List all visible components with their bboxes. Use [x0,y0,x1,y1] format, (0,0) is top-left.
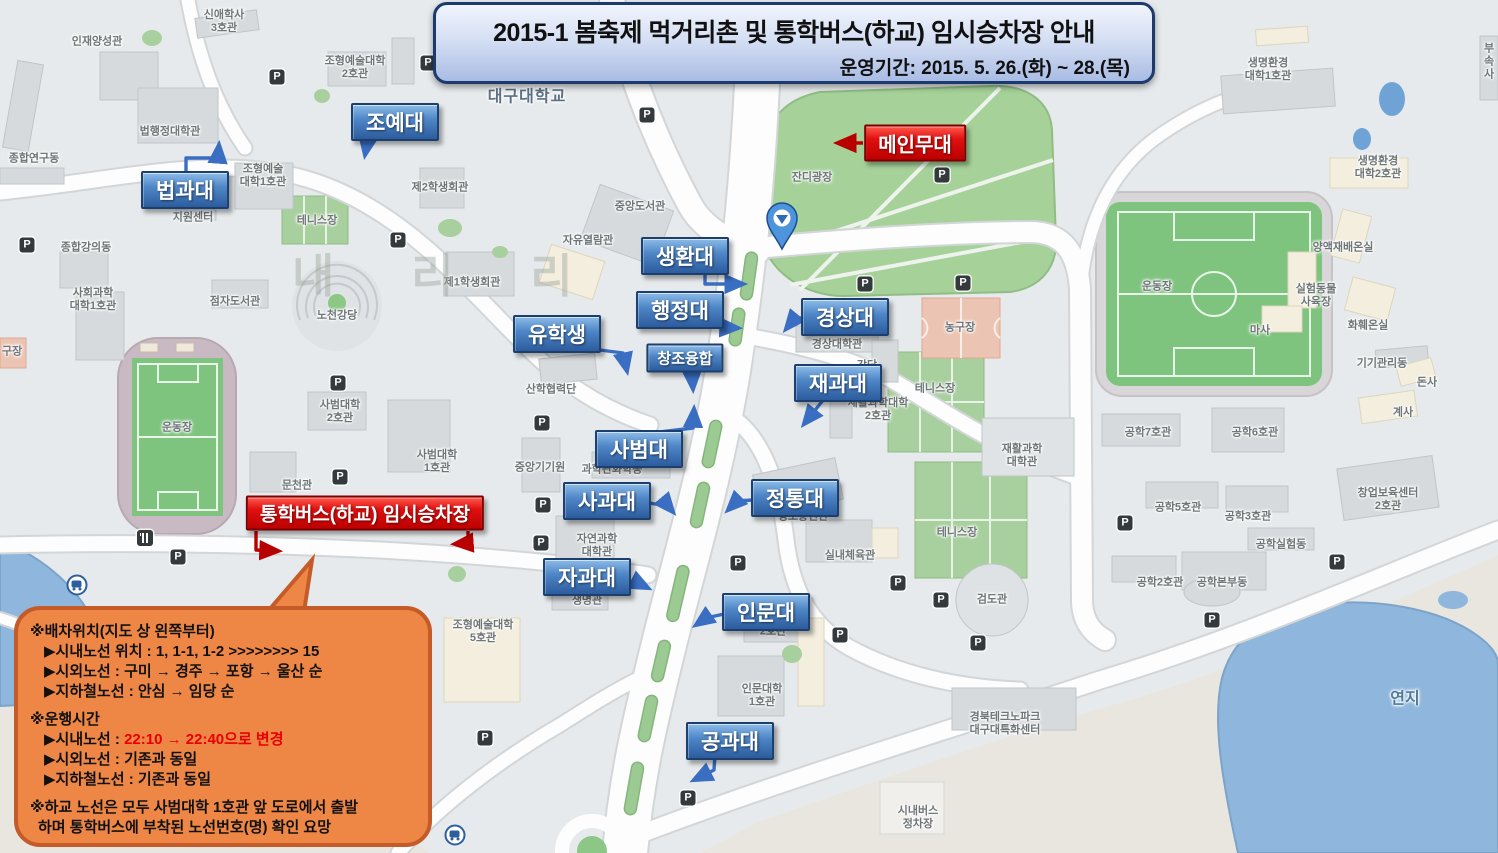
bus-stop-icon [67,575,88,596]
parking-icon: P [331,376,346,391]
parking-icon: P [956,276,971,291]
college-label: 사과대 [563,482,651,520]
notice-bubble: ※배차위치(지도 상 왼쪽부터)▶시내노선 위치 : 1, 1-1, 1-2 >… [14,606,432,847]
parking-icon: P [731,556,746,571]
notice-line: ▶시내노선 : 22:10 → 22:40으로 변경 [30,730,424,750]
parking-icon: P [891,576,906,591]
parking-icon: P [20,238,35,253]
notice-line: ※운행시간 [30,710,424,730]
college-label: 행정대 [636,291,724,329]
college-label: 생환대 [641,237,729,275]
notice-line: 하며 통학버스에 부착된 노선번호(명) 확인 요망 [30,818,424,838]
parking-icon: P [534,536,549,551]
restaurant-icon [137,530,153,546]
college-label: 자과대 [543,558,631,596]
college-label: 정통대 [751,479,839,517]
college-label: 법과대 [141,171,229,209]
notice-line: ▶시외노선 : 구미 → 경주 → 포항 → 울산 순 [30,662,424,682]
notice-line: ▶시내노선 위치 : 1, 1-1, 1-2 >>>>>>>> 15 [30,642,424,662]
notice-text: ※배차위치(지도 상 왼쪽부터)▶시내노선 위치 : 1, 1-1, 1-2 >… [30,622,424,838]
title-banner: 2015-1 봄축제 먹거리촌 및 통학버스(하교) 임시승차장 안내 운영기간… [433,2,1155,84]
college-label: 사범대 [595,430,683,468]
notice-line: ▶지하철노선 : 기존과 동일 [30,770,424,790]
stadium-left [118,338,236,534]
parking-icon: P [333,470,348,485]
notice-line: ▶지하철노선 : 안심 → 임당 순 [30,682,424,702]
pond-yeonji [1218,603,1498,853]
parking-icon: P [478,731,493,746]
college-label: 유학생 [513,315,601,353]
amphitheater [292,261,382,351]
college-label: 재과대 [794,364,882,402]
parking-icon: P [971,636,986,651]
parking-icon: P [935,168,950,183]
college-label: 창조융합 [646,344,723,373]
college-label: 조예대 [351,103,439,141]
college-label: 인문대 [722,593,810,631]
bus-stop-area-label: 통학버스(하교) 임시승차장 [246,496,484,531]
parking-icon: P [391,233,406,248]
notice-line: ▶시외노선 : 기존과 동일 [30,750,424,770]
parking-icon: P [270,70,285,85]
college-label: 경상대 [801,298,889,336]
parking-icon: P [1118,516,1133,531]
notice-line: ※하교 노선은 모두 사범대학 1호관 앞 도로에서 출발 [30,798,424,818]
parking-icon: P [536,498,551,513]
parking-icon: P [171,550,186,565]
bus-stop-icon [445,825,466,846]
parking-icon: P [858,277,873,292]
main-stage-label: 메인무대 [864,125,966,162]
parking-icon: P [681,791,696,806]
parking-icon: P [833,628,848,643]
notice-changed-time: 22:10 → 22:40으로 변경 [124,731,283,748]
notice-line: ※배차위치(지도 상 왼쪽부터) [30,622,424,642]
parking-icon: P [934,593,949,608]
poster-operating-period: 운영기간: 2015. 5. 26.(화) ~ 28.(목) [436,53,1152,80]
parking-icon: P [1330,555,1345,570]
college-label: 공과대 [686,722,774,760]
parking-icon: P [1205,613,1220,628]
campus-map-poster: 신애학사 3호관인재양성관조형예술대학 2호관법행정대학관종합연구동조형예술 대… [0,0,1498,853]
parking-icon: P [535,416,550,431]
parking-icon: P [640,108,655,123]
poster-title: 2015-1 봄축제 먹거리촌 및 통학버스(하교) 임시승차장 안내 [436,13,1152,49]
